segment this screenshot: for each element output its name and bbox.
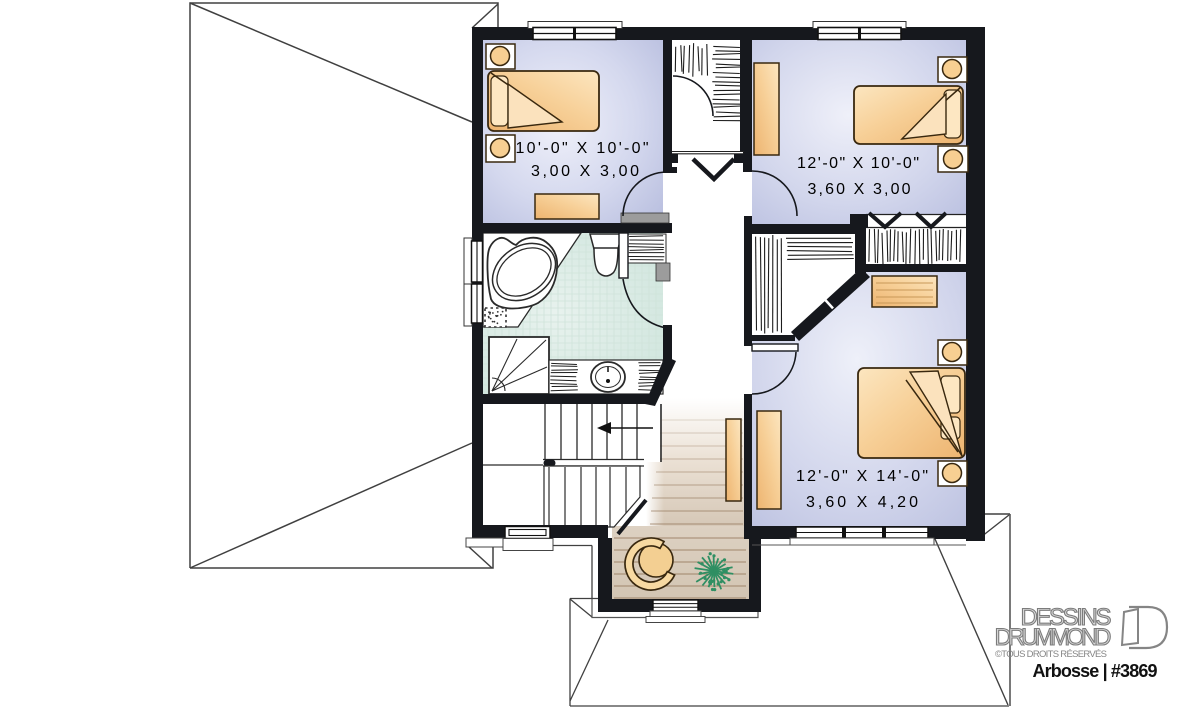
svg-text:3,60 X 3,00: 3,60 X 3,00 [808, 181, 911, 198]
svg-text:12'-0" X 14'-0": 12'-0" X 14'-0" [796, 468, 928, 485]
svg-text:10'-0" X 10'-0": 10'-0" X 10'-0" [516, 140, 649, 157]
svg-text:©TOUS DROITS RÉSERVÉS: ©TOUS DROITS RÉSERVÉS [995, 649, 1107, 660]
svg-text:DRUMMOND: DRUMMOND [995, 624, 1112, 651]
svg-text:12'-0" X 10'-0": 12'-0" X 10'-0" [797, 155, 919, 172]
svg-text:Arbosse | #3869: Arbosse | #3869 [1033, 661, 1158, 681]
